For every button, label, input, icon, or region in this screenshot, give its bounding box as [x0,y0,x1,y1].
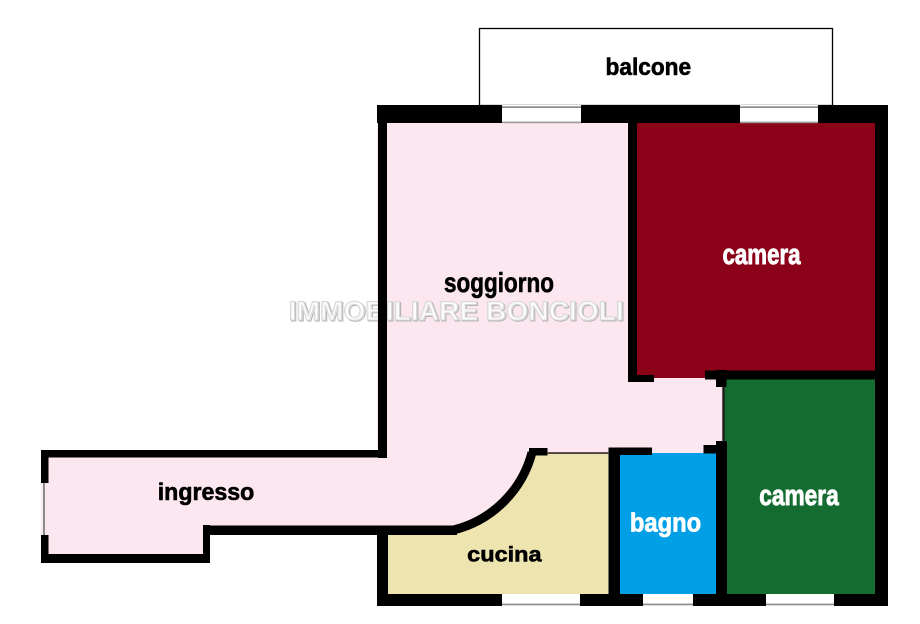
svg-text:cucina: cucina [467,543,542,566]
svg-text:soggiorno: soggiorno [444,267,554,298]
svg-text:bagno: bagno [630,509,701,537]
svg-text:camera: camera [759,480,839,512]
svg-text:balcone: balcone [606,54,692,81]
svg-text:IMMOBILIARE BONCIOLI: IMMOBILIARE BONCIOLI [289,296,624,326]
svg-text:camera: camera [723,239,802,271]
svg-text:ingresso: ingresso [158,479,255,506]
